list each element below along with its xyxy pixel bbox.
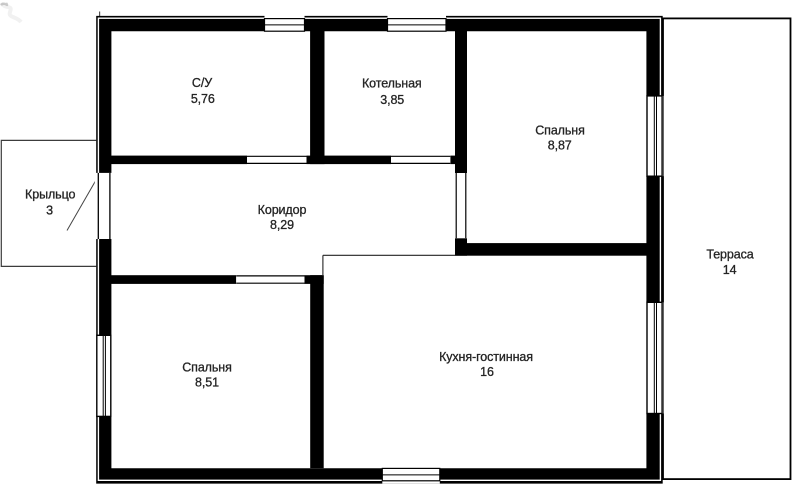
svg-text:Котельная: Котельная	[362, 77, 422, 91]
svg-text:16: 16	[480, 365, 494, 379]
svg-text:Спальня: Спальня	[535, 124, 585, 138]
svg-text:Терраса: Терраса	[706, 247, 753, 261]
svg-text:8,29: 8,29	[270, 218, 294, 232]
svg-text:Коридор: Коридор	[258, 203, 307, 217]
svg-text:14: 14	[723, 263, 737, 277]
svg-text:Крыльцо: Крыльцо	[25, 188, 75, 202]
svg-text:5,76: 5,76	[191, 92, 215, 106]
svg-text:Спальня: Спальня	[182, 361, 232, 375]
svg-text:3,85: 3,85	[380, 93, 404, 107]
svg-text:Кухня-гостинная: Кухня-гостинная	[439, 350, 533, 364]
svg-text:С/У: С/У	[192, 76, 212, 90]
svg-text:8,87: 8,87	[548, 139, 572, 153]
svg-text:3: 3	[46, 203, 53, 217]
svg-text:8,51: 8,51	[195, 376, 219, 390]
